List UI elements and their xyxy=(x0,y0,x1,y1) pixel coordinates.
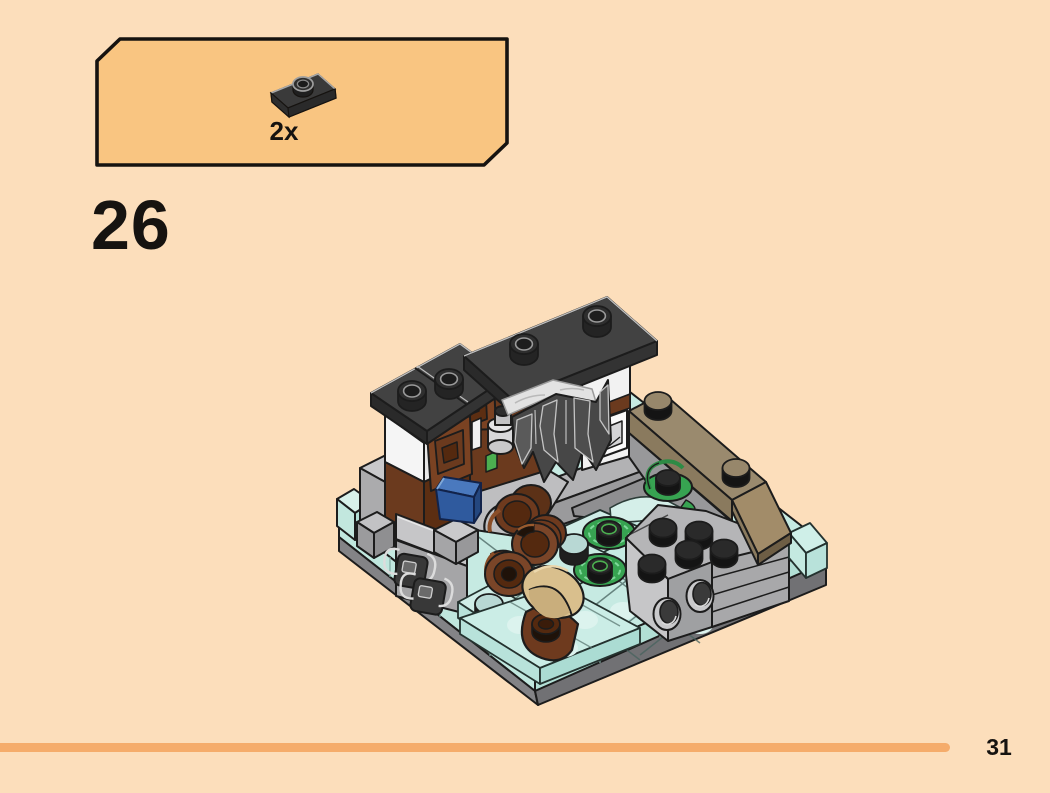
svg-text:26: 26 xyxy=(91,186,171,264)
svg-text:31: 31 xyxy=(986,734,1012,760)
svg-text:2x: 2x xyxy=(270,116,299,146)
